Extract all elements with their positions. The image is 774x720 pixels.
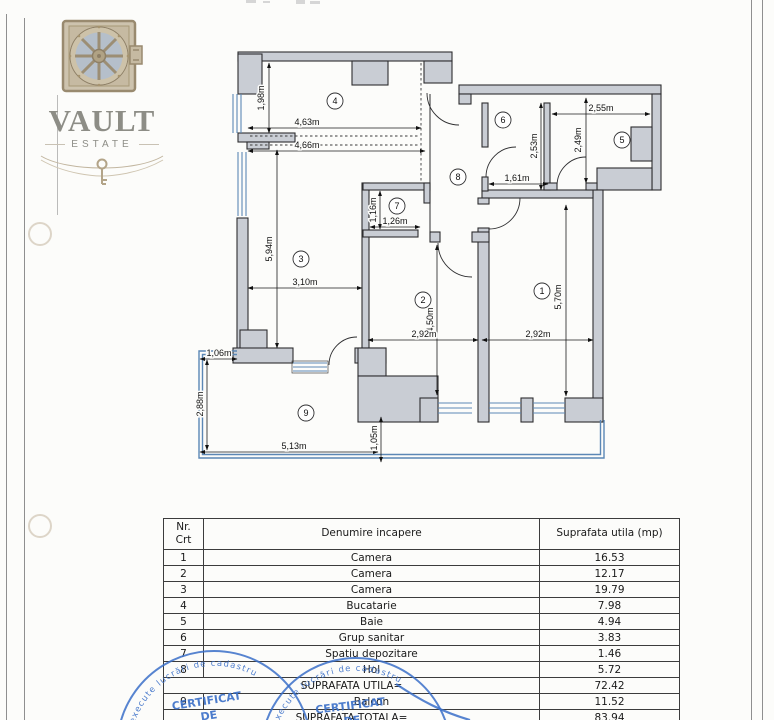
room-number: 4	[332, 96, 337, 106]
dashed-opening-lines	[250, 63, 421, 183]
table-row: 7Spatiu depozitare1.46	[164, 646, 680, 662]
dimension-label: 2,55m	[588, 103, 613, 113]
row-area: 12.17	[540, 566, 680, 582]
row-name: Camera	[204, 550, 540, 566]
row-name: Baie	[204, 614, 540, 630]
row-name: Balcon	[204, 694, 540, 710]
dimension-label: 2,92m	[411, 329, 436, 339]
subtotal-label: SUPRAFATA UTILA=	[164, 678, 540, 694]
room-number: 2	[420, 295, 425, 305]
room-number: 1	[539, 286, 544, 296]
header-nr: Nr.Crt	[164, 519, 204, 550]
table-row: 2Camera12.17	[164, 566, 680, 582]
total-row: SUPRAFATA TOTALA= 83.94	[164, 710, 680, 720]
table-header-row: Nr.Crt Denumire incapere Suprafata utila…	[164, 519, 680, 550]
row-nr: 3	[164, 582, 204, 598]
room-number: 9	[303, 408, 308, 418]
row-area: 1.46	[540, 646, 680, 662]
room-number: 7	[394, 201, 399, 211]
row-area: 4.94	[540, 614, 680, 630]
table-row: 5Baie4.94	[164, 614, 680, 630]
row-nr: 1	[164, 550, 204, 566]
table-row: 8Hol5.72	[164, 662, 680, 678]
row-area: 11.52	[540, 694, 680, 710]
dimension-label: 5,13m	[281, 441, 306, 451]
header-area: Suprafata utila (mp)	[540, 519, 680, 550]
table-row: 1Camera16.53	[164, 550, 680, 566]
total-value: 83.94	[540, 710, 680, 720]
room-number: 5	[619, 135, 624, 145]
row-name: Bucatarie	[204, 598, 540, 614]
balcony-row: 9 Balcon 11.52	[164, 694, 680, 710]
dimension-label: 1,61m	[504, 173, 529, 183]
dimension-label: 1,05m	[369, 425, 379, 450]
subtotal-row: SUPRAFATA UTILA= 72.42	[164, 678, 680, 694]
dimension-label: 2,88m	[195, 391, 205, 416]
dimension-label: 4,63m	[294, 117, 319, 127]
room-number: 8	[455, 172, 460, 182]
row-nr: 8	[164, 662, 204, 678]
dimension-label: 4,66m	[294, 140, 319, 150]
dimension-label: 1,26m	[382, 216, 407, 226]
row-name: Grup sanitar	[204, 630, 540, 646]
row-area: 7.98	[540, 598, 680, 614]
row-name: Hol	[204, 662, 540, 678]
row-name: Camera	[204, 582, 540, 598]
dimension-label: 5,94m	[264, 236, 274, 261]
dimension-label: 1,98m	[256, 85, 266, 110]
row-nr: 6	[164, 630, 204, 646]
area-table: Nr.Crt Denumire incapere Suprafata utila…	[163, 518, 680, 720]
table-row: 4Bucatarie7.98	[164, 598, 680, 614]
row-area: 16.53	[540, 550, 680, 566]
dimension-label: 2,92m	[525, 329, 550, 339]
scanned-floor-plan-page: VAULT ESTATE	[0, 0, 774, 720]
table-row: 6Grup sanitar3.83	[164, 630, 680, 646]
row-nr: 5	[164, 614, 204, 630]
subtotal-value: 72.42	[540, 678, 680, 694]
room-number: 3	[298, 254, 303, 264]
row-nr: 2	[164, 566, 204, 582]
row-area: 5.72	[540, 662, 680, 678]
room-number: 6	[500, 115, 505, 125]
row-nr: 4	[164, 598, 204, 614]
row-area: 3.83	[540, 630, 680, 646]
row-nr: 9	[164, 694, 204, 710]
dimension-label: 2,49m	[573, 127, 583, 152]
row-name: Spatiu depozitare	[204, 646, 540, 662]
table-row: 3Camera19.79	[164, 582, 680, 598]
dimension-label: 1,16m	[368, 197, 378, 222]
dimension-label: 1,06m	[206, 348, 231, 358]
dimension-label: 2,53m	[529, 133, 539, 158]
header-room-name: Denumire incapere	[204, 519, 540, 550]
dimension-label: 5,70m	[553, 284, 563, 309]
total-label: SUPRAFATA TOTALA=	[164, 710, 540, 720]
row-nr: 7	[164, 646, 204, 662]
dimension-label: 3,10m	[292, 277, 317, 287]
row-name: Camera	[204, 566, 540, 582]
row-area: 19.79	[540, 582, 680, 598]
